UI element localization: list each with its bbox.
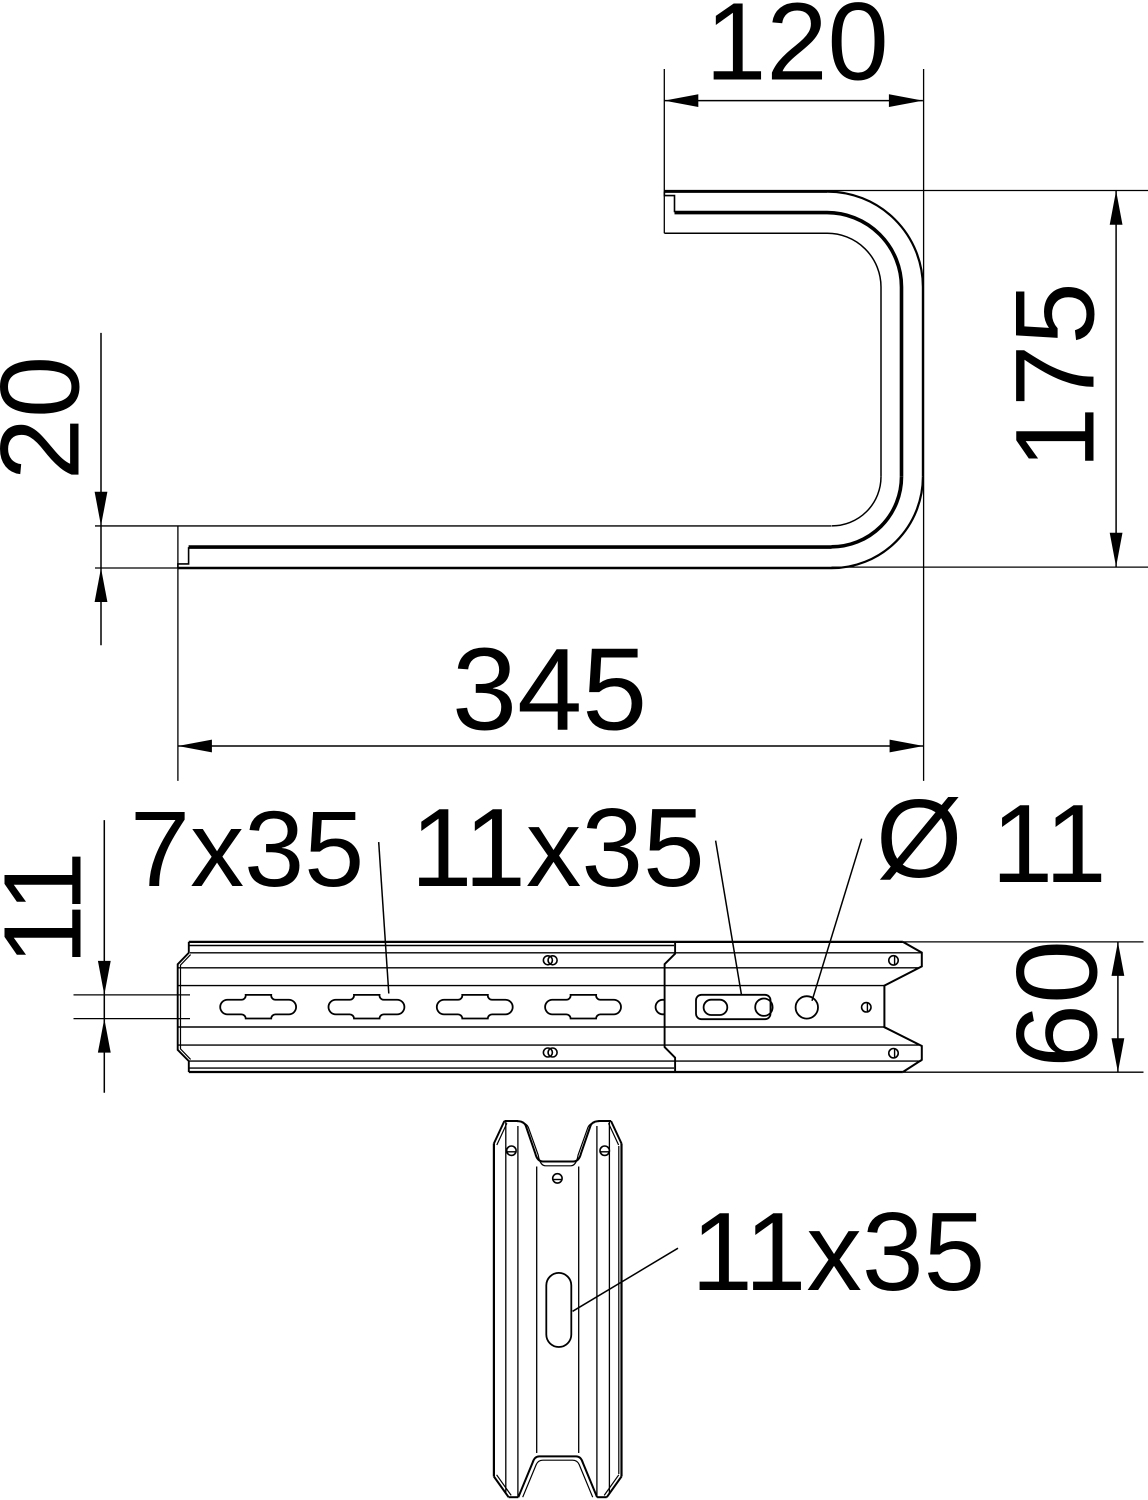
svg-text:11x35: 11x35	[691, 1190, 985, 1314]
svg-text:20: 20	[0, 356, 103, 481]
svg-text:345: 345	[452, 624, 647, 755]
svg-text:11: 11	[991, 782, 1106, 906]
svg-text:11x35: 11x35	[411, 786, 705, 910]
svg-text:175: 175	[993, 282, 1118, 469]
svg-text:60: 60	[994, 940, 1122, 1068]
svg-text:Ø: Ø	[876, 777, 962, 901]
svg-text:11: 11	[0, 851, 105, 965]
svg-text:120: 120	[705, 0, 889, 104]
svg-text:7x35: 7x35	[130, 788, 364, 909]
